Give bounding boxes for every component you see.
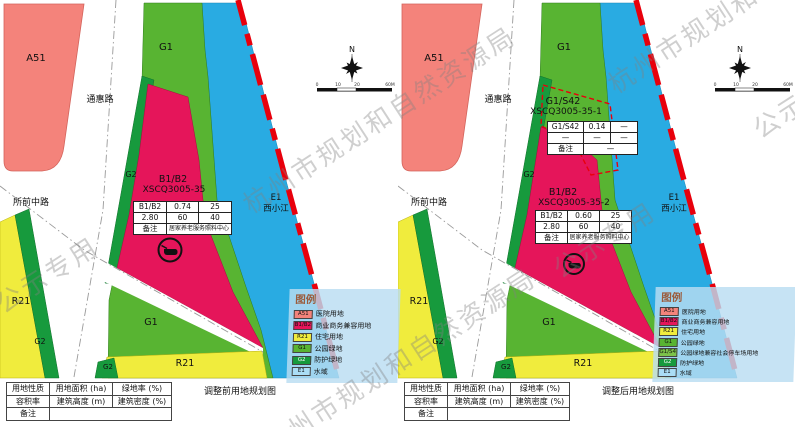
zone-label-e1: E1 [654,194,694,203]
zone-label-r21-west: R21 [402,297,436,307]
legend-item-label: 医院用地 [682,307,706,316]
legend-item: A51医院用地 [294,309,397,319]
table-cell: — [584,133,611,144]
new-parcel-info-table: G1/S42 0.14 — — — — 备注 — [547,121,638,155]
legend-swatch: R21 [659,327,678,336]
table-cell: 用地性质 [405,383,448,396]
table-cell: 备注 [134,224,167,235]
zone-label-g1-top: G1 [542,43,586,54]
zone-a51-hospital [402,4,482,171]
legend-item: G1公园绿地 [659,338,792,347]
table-cell: 备注 [405,408,448,421]
river-name-label: 西小江 [650,205,698,214]
zone-label-a51: A51 [14,54,58,65]
table-cell: G1/S42 [548,122,584,133]
legend-item-label: 商业商务兼容用地 [315,321,371,331]
land-use-adjustment-notice: 杭州市规划和自然资源局 杭州市规划和自然资源局 杭州市规划和自然资源局 公示专用… [0,0,795,427]
table-cell: 居家养老服务照料中心 [167,224,232,235]
table-cell: 绿地率 (%) [113,383,172,396]
table-cell: 2.80 [134,213,167,224]
table-cell: 容积率 [7,395,50,408]
zone-label-g1-bottom: G1 [532,318,566,328]
river-name-label: 西小江 [252,205,300,214]
scale-tick: 10 [335,82,341,88]
legend: 图例 A51医院用地 B1/B2商业商务兼容用地 R21住宅用地 G1公园绿地 … [652,287,795,382]
table-cell: 建筑高度 (m) [50,395,113,408]
legend-swatch: G2 [292,356,311,365]
road-label-tonghui: 通惠路 [78,96,122,105]
legend-item: A51医院用地 [660,307,793,316]
legend-item-label: 水域 [680,368,692,377]
table-cell: 用地面积 (ha) [50,383,113,396]
zone-label-g1-top: G1 [144,43,188,54]
legend-item: E1水域 [658,368,791,377]
legend-item-label: 防护绿地 [314,355,342,365]
new-parcel-code-label: G1/S42 [536,97,590,107]
legend-item: G2防护绿地 [658,358,791,367]
legend-swatch: G2 [658,358,677,367]
table-cell: B1/B2 [536,211,568,222]
legend-swatch: E1 [658,368,677,377]
legend-item: G1公园绿地 [292,344,395,354]
zone-label-g2-patch: G2 [99,364,117,371]
legend-item-label: 公园绿地兼容社会停车场用地 [680,348,758,357]
table-cell: — [611,133,638,144]
table-cell: — [584,144,638,155]
table-cell: 用地面积 (ha) [448,383,511,396]
map-caption-after: 调整后用地规划图 [576,384,700,397]
north-arrow-icon: N [341,45,364,82]
table-cell: 备注 [7,408,50,421]
legend-swatch: G1 [659,338,678,347]
north-label: N [349,45,355,54]
table-cell: B1/B2 [134,202,167,213]
table-cell: 用地性质 [7,383,50,396]
legend-item-label: 住宅用地 [681,327,705,336]
table-cell: 60 [568,222,600,233]
scale-tick: 0 [714,82,717,88]
parcel-code-label: B1/B2 [536,188,590,198]
zone-label-r21-bottom: R21 [566,359,600,369]
zone-label-g2-west: G2 [29,338,51,346]
table-cell: 60 [167,213,199,224]
table-cell: 25 [600,211,632,222]
parcel-id-label: XSCQ3005-35-2 [526,199,622,208]
road-label-suoqian: 所前中路 [6,199,56,208]
legend-title: 图例 [295,292,398,307]
legend-item: R21住宅用地 [659,327,792,336]
zone-label-r21-bottom: R21 [168,359,202,369]
legend-item-label: 住宅用地 [315,332,343,342]
map-caption-before: 调整前用地规划图 [178,384,302,397]
table-cell: 备注 [536,233,568,244]
legend-swatch: B1/B2 [659,317,678,326]
legend-item: G1/S42公园绿地兼容社会停车场用地 [658,348,791,357]
legend-item-label: 公园绿地 [314,344,342,354]
north-arrow-icon: N [729,45,752,82]
legend-item-label: 商业商务兼容用地 [681,317,729,326]
table-cell: 建筑密度 (%) [511,395,570,408]
legend-title: 图例 [661,290,794,305]
table-cell: 建筑高度 (m) [448,395,511,408]
table-cell: 25 [199,202,232,213]
table-cell: 绿地率 (%) [511,383,570,396]
scale-tick: 60M [783,82,793,88]
north-label: N [737,45,743,54]
scale-tick: 10 [733,82,739,88]
zone-label-g1-bottom: G1 [134,318,168,328]
table-cell: — [548,133,584,144]
legend-swatch: G1/S42 [658,348,677,357]
zone-a51-hospital [4,4,84,171]
legend-item: E1水域 [292,367,395,377]
legend-swatch: R21 [293,333,312,342]
panel-before-adjustment: N 0 10 20 60M A51 通惠路 所前中路 G1 G2 B1/B2 X… [0,0,397,427]
zone-label-g2-strip: G2 [120,171,142,179]
table-cell [448,408,570,421]
legend-item-label: 防护绿地 [680,358,704,367]
zone-label-e1: E1 [256,194,296,203]
zone-label-r21-west: R21 [4,297,38,307]
panel-after-adjustment: N 0 10 20 60M A51 通惠路 所前中路 G1 G2 G1/S42 … [398,0,795,427]
table-cell: 备注 [548,144,584,155]
parcel-id-label: XSCQ3005-35 [132,186,216,195]
legend-swatch: A51 [294,310,313,319]
legend: 图例 A51医院用地 B1/B2商业商务兼容用地 R21住宅用地 G1公园绿地 … [286,289,400,383]
legend-item-label: 水域 [314,367,328,377]
legend-item: B1/B2商业商务兼容用地 [659,317,792,326]
scale-tick: 20 [354,82,360,88]
table-cell: 40 [199,213,232,224]
parcel-info-table: B1/B2 0.74 25 2.80 60 40 备注 居家养老服务照料中心 [133,201,232,235]
parcel-code-label: B1/B2 [146,175,200,185]
legend-swatch: A51 [660,307,679,316]
table-cell: 40 [600,222,632,233]
legend-item-label: 医院用地 [316,309,344,319]
table-cell: 2.80 [536,222,568,233]
legend-swatch: G1 [292,344,311,353]
table-cell: 0.74 [167,202,199,213]
road-label-tonghui: 通惠路 [476,96,520,105]
spec-header-table: 用地性质 用地面积 (ha) 绿地率 (%) 容积率 建筑高度 (m) 建筑密度… [6,382,172,421]
legend-swatch: B1/B2 [293,321,312,330]
zone-label-g2-west: G2 [427,338,449,346]
table-cell: 容积率 [405,395,448,408]
legend-item: G2防护绿地 [292,355,395,365]
table-cell: 0.60 [568,211,600,222]
table-cell [50,408,172,421]
zone-label-g2-strip: G2 [518,171,540,179]
table-cell: 居家养老服务照料中心 [568,233,632,244]
legend-item-label: 公园绿地 [681,338,705,347]
zone-label-a51: A51 [412,54,456,65]
legend-swatch: E1 [292,367,311,376]
legend-item: B1/B2商业商务兼容用地 [293,321,396,331]
table-cell: — [611,122,638,133]
zone-label-g2-patch: G2 [497,364,515,371]
scale-bar: 0 10 20 60M [714,82,793,91]
parcel-info-table: B1/B2 0.60 25 2.80 60 40 备注 居家养老服务照料中心 [535,210,632,244]
spec-header-table: 用地性质 用地面积 (ha) 绿地率 (%) 容积率 建筑高度 (m) 建筑密度… [404,382,570,421]
scale-tick: 60M [385,82,395,88]
table-cell: 0.14 [584,122,611,133]
new-parcel-id-label: XSCQ3005-35-1 [522,108,610,117]
scale-bar: 0 10 20 60M [316,82,395,91]
scale-tick: 20 [752,82,758,88]
scale-tick: 0 [316,82,319,88]
road-label-suoqian: 所前中路 [404,199,454,208]
table-cell: 建筑密度 (%) [113,395,172,408]
legend-item: R21住宅用地 [293,332,396,342]
